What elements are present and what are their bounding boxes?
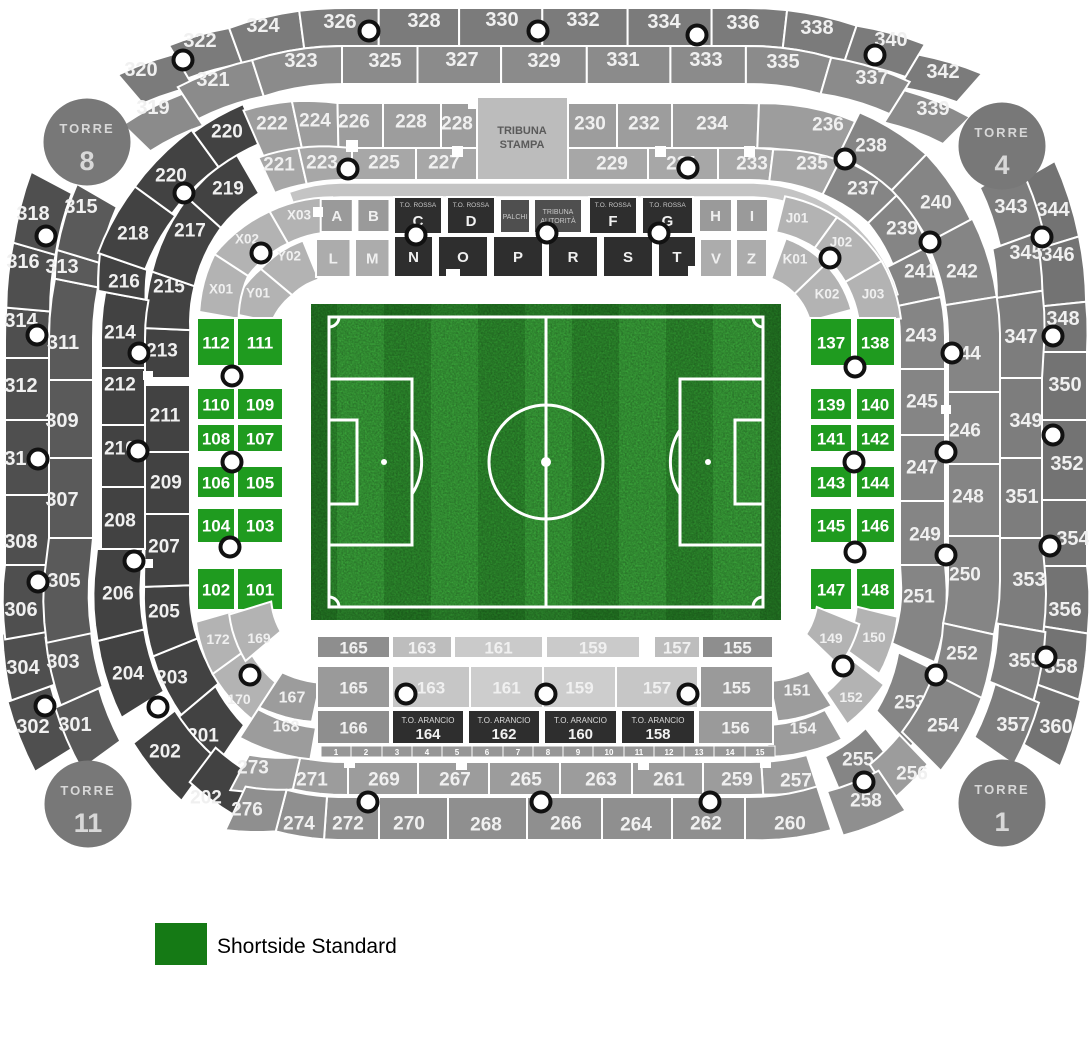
svg-text:160: 160	[568, 726, 593, 743]
svg-text:TRIBUNA: TRIBUNA	[543, 209, 574, 216]
svg-text:H: H	[710, 208, 721, 225]
svg-text:268: 268	[470, 815, 502, 836]
svg-text:164: 164	[415, 726, 441, 743]
svg-text:155: 155	[722, 679, 750, 698]
svg-text:O: O	[457, 249, 469, 266]
svg-text:T.O. ROSSA: T.O. ROSSA	[453, 202, 490, 209]
svg-text:251: 251	[903, 587, 935, 608]
svg-text:2: 2	[364, 748, 369, 757]
svg-text:305: 305	[47, 570, 80, 592]
svg-text:323: 323	[284, 50, 317, 72]
svg-text:139: 139	[817, 396, 845, 415]
svg-text:316: 316	[6, 251, 39, 273]
svg-text:322: 322	[183, 30, 216, 52]
svg-text:111: 111	[247, 334, 274, 353]
svg-text:250: 250	[949, 565, 981, 586]
svg-text:213: 213	[146, 341, 178, 362]
svg-text:150: 150	[862, 629, 886, 645]
svg-text:PALCHI: PALCHI	[503, 214, 528, 221]
svg-text:267: 267	[439, 770, 471, 791]
svg-text:263: 263	[585, 770, 617, 791]
svg-text:T.O. ROSSA: T.O. ROSSA	[649, 202, 686, 209]
svg-text:230: 230	[574, 114, 606, 135]
svg-text:211: 211	[150, 406, 181, 427]
svg-text:205: 205	[148, 602, 180, 623]
svg-text:225: 225	[368, 153, 400, 174]
svg-text:264: 264	[620, 815, 652, 836]
svg-text:162: 162	[491, 726, 516, 743]
svg-text:8: 8	[546, 748, 551, 757]
svg-text:350: 350	[1048, 374, 1081, 396]
svg-text:106: 106	[202, 474, 230, 493]
svg-text:326: 326	[323, 11, 356, 33]
svg-text:3: 3	[395, 748, 400, 757]
svg-text:246: 246	[949, 421, 981, 442]
svg-text:6: 6	[485, 748, 490, 757]
svg-text:154: 154	[790, 721, 817, 738]
svg-text:266: 266	[550, 814, 582, 835]
svg-text:N: N	[408, 249, 419, 266]
svg-text:271: 271	[296, 770, 328, 791]
svg-text:272: 272	[332, 814, 364, 835]
svg-text:327: 327	[445, 49, 478, 71]
svg-text:344: 344	[1036, 199, 1070, 221]
svg-text:9: 9	[576, 748, 581, 757]
svg-text:168: 168	[273, 719, 300, 736]
svg-text:228: 228	[395, 112, 427, 133]
svg-text:255: 255	[842, 750, 874, 771]
svg-text:256: 256	[896, 764, 928, 785]
svg-text:243: 243	[905, 326, 937, 347]
svg-text:TORRE: TORRE	[60, 783, 115, 798]
svg-text:169: 169	[247, 630, 271, 646]
svg-text:332: 332	[566, 9, 599, 31]
svg-text:302: 302	[16, 716, 49, 738]
svg-text:158: 158	[645, 726, 670, 743]
svg-text:165: 165	[339, 639, 367, 658]
svg-text:1: 1	[334, 748, 339, 757]
svg-text:140: 140	[861, 396, 889, 415]
svg-text:156: 156	[721, 719, 749, 738]
svg-text:334: 334	[647, 11, 681, 33]
svg-text:Shortside Standard: Shortside Standard	[217, 935, 397, 958]
svg-text:163: 163	[408, 639, 436, 658]
svg-text:148: 148	[861, 581, 889, 600]
svg-text:222: 222	[256, 114, 288, 135]
svg-text:343: 343	[994, 196, 1027, 218]
svg-text:349: 349	[1009, 410, 1042, 432]
svg-text:202: 202	[190, 788, 222, 809]
svg-text:152: 152	[839, 689, 863, 705]
svg-text:K01: K01	[783, 252, 808, 267]
svg-text:319: 319	[136, 97, 169, 119]
svg-text:360: 360	[1039, 716, 1072, 738]
svg-text:14: 14	[726, 748, 735, 757]
svg-text:L: L	[329, 251, 338, 268]
svg-text:249: 249	[909, 525, 941, 546]
svg-text:202: 202	[149, 742, 181, 763]
svg-text:167: 167	[279, 690, 306, 707]
svg-text:102: 102	[202, 581, 230, 600]
svg-text:104: 104	[202, 517, 231, 536]
svg-text:238: 238	[855, 136, 887, 157]
svg-text:204: 204	[112, 664, 144, 685]
svg-text:166: 166	[339, 719, 367, 738]
svg-text:161: 161	[484, 639, 512, 658]
svg-text:337: 337	[855, 67, 888, 89]
svg-text:247: 247	[906, 458, 938, 479]
svg-text:207: 207	[148, 537, 180, 558]
svg-text:262: 262	[690, 814, 722, 835]
svg-text:313: 313	[45, 256, 78, 278]
svg-text:224: 224	[299, 111, 331, 132]
svg-text:15: 15	[756, 748, 765, 757]
svg-text:11: 11	[635, 748, 644, 757]
svg-text:TORRE: TORRE	[974, 125, 1029, 140]
svg-text:236: 236	[812, 115, 844, 136]
svg-text:V: V	[711, 251, 721, 268]
svg-text:165: 165	[339, 679, 367, 698]
svg-text:172: 172	[206, 631, 230, 647]
svg-text:J03: J03	[862, 287, 885, 302]
svg-text:109: 109	[246, 396, 274, 415]
svg-text:143: 143	[817, 474, 845, 493]
svg-text:301: 301	[58, 714, 91, 736]
svg-text:206: 206	[102, 584, 134, 605]
svg-text:170: 170	[227, 691, 251, 707]
svg-text:254: 254	[927, 716, 959, 737]
svg-text:261: 261	[653, 770, 685, 791]
svg-text:R: R	[568, 249, 579, 266]
svg-text:157: 157	[643, 679, 671, 698]
svg-text:11: 11	[74, 808, 103, 838]
svg-text:1: 1	[994, 807, 1009, 837]
svg-text:8: 8	[79, 146, 94, 176]
svg-text:103: 103	[246, 517, 274, 536]
svg-text:TORRE: TORRE	[59, 121, 114, 136]
svg-text:Y01: Y01	[246, 286, 271, 301]
svg-text:D: D	[466, 213, 477, 230]
svg-text:216: 216	[108, 272, 140, 293]
svg-text:318: 318	[16, 203, 49, 225]
svg-text:226: 226	[338, 112, 370, 133]
svg-text:331: 331	[606, 49, 639, 71]
svg-text:335: 335	[766, 51, 799, 73]
svg-text:239: 239	[886, 219, 918, 240]
svg-text:159: 159	[579, 639, 607, 658]
svg-text:217: 217	[174, 221, 206, 242]
svg-text:13: 13	[695, 748, 704, 757]
svg-text:212: 212	[104, 375, 136, 396]
svg-text:307: 307	[45, 489, 78, 511]
svg-text:214: 214	[104, 323, 136, 344]
svg-text:155: 155	[723, 639, 751, 658]
svg-text:330: 330	[485, 9, 518, 31]
svg-text:F: F	[608, 213, 617, 230]
svg-text:7: 7	[516, 748, 521, 757]
svg-text:161: 161	[492, 679, 520, 698]
svg-text:X01: X01	[209, 282, 234, 297]
svg-text:138: 138	[861, 334, 889, 353]
svg-text:5: 5	[455, 748, 460, 757]
svg-text:112: 112	[202, 334, 229, 353]
svg-text:328: 328	[407, 10, 440, 32]
svg-text:260: 260	[774, 814, 806, 835]
svg-text:221: 221	[263, 155, 295, 176]
svg-text:108: 108	[202, 430, 230, 449]
svg-text:144: 144	[861, 474, 890, 493]
svg-text:137: 137	[817, 334, 845, 353]
svg-text:K02: K02	[815, 287, 840, 302]
svg-text:276: 276	[231, 800, 263, 821]
svg-text:333: 333	[689, 49, 722, 71]
svg-text:270: 270	[393, 814, 425, 835]
svg-text:229: 229	[596, 154, 628, 175]
svg-text:T.O. ARANCIO: T.O. ARANCIO	[478, 716, 531, 725]
svg-text:157: 157	[663, 639, 691, 658]
svg-text:T.O. ROSSA: T.O. ROSSA	[400, 202, 437, 209]
svg-text:X03: X03	[287, 208, 312, 223]
svg-text:S: S	[623, 249, 633, 266]
svg-text:Y02: Y02	[277, 249, 301, 264]
svg-text:101: 101	[246, 581, 274, 600]
svg-text:336: 336	[726, 12, 759, 34]
svg-text:M: M	[366, 251, 379, 268]
svg-text:303: 303	[46, 651, 79, 673]
svg-text:T: T	[672, 249, 681, 266]
svg-text:242: 242	[946, 262, 978, 283]
svg-text:357: 357	[996, 714, 1029, 736]
svg-text:308: 308	[4, 531, 37, 553]
svg-text:321: 321	[196, 69, 229, 91]
svg-text:151: 151	[784, 683, 811, 700]
svg-text:312: 312	[4, 375, 37, 397]
svg-text:329: 329	[527, 50, 560, 72]
svg-text:4: 4	[994, 150, 1009, 180]
svg-text:274: 274	[283, 814, 315, 835]
svg-text:T.O. ARANCIO: T.O. ARANCIO	[402, 716, 455, 725]
svg-text:252: 252	[946, 644, 978, 665]
svg-text:237: 237	[847, 179, 879, 200]
svg-text:145: 145	[817, 517, 845, 536]
svg-text:208: 208	[104, 511, 136, 532]
svg-text:142: 142	[861, 430, 889, 449]
svg-text:163: 163	[417, 679, 445, 698]
svg-text:352: 352	[1050, 453, 1083, 475]
svg-text:353: 353	[1012, 569, 1045, 591]
svg-text:273: 273	[237, 758, 269, 779]
svg-text:TORRE: TORRE	[974, 782, 1029, 797]
svg-text:228: 228	[441, 114, 473, 135]
svg-text:339: 339	[916, 98, 949, 120]
svg-text:325: 325	[368, 50, 401, 72]
svg-text:248: 248	[952, 487, 984, 508]
svg-text:4: 4	[425, 748, 430, 757]
svg-text:P: P	[513, 249, 523, 266]
svg-text:146: 146	[861, 517, 889, 536]
svg-text:Z: Z	[747, 251, 756, 268]
svg-text:223: 223	[306, 153, 338, 174]
svg-text:141: 141	[817, 430, 845, 449]
svg-text:12: 12	[665, 748, 674, 757]
svg-text:347: 347	[1004, 326, 1037, 348]
svg-text:234: 234	[696, 114, 728, 135]
svg-text:STAMPA: STAMPA	[500, 139, 545, 151]
svg-text:235: 235	[796, 154, 828, 175]
svg-text:B: B	[368, 208, 379, 225]
svg-text:159: 159	[565, 679, 593, 698]
svg-text:324: 324	[246, 15, 280, 37]
svg-text:T.O. ROSSA: T.O. ROSSA	[595, 202, 632, 209]
svg-text:304: 304	[6, 657, 40, 679]
svg-text:232: 232	[628, 114, 660, 135]
svg-text:309: 309	[45, 410, 78, 432]
svg-text:T.O. ARANCIO: T.O. ARANCIO	[554, 716, 607, 725]
svg-text:209: 209	[150, 473, 182, 494]
svg-text:338: 338	[800, 17, 833, 39]
svg-text:TRIBUNA: TRIBUNA	[497, 125, 547, 137]
svg-text:218: 218	[117, 224, 149, 245]
svg-text:356: 356	[1048, 599, 1081, 621]
svg-text:259: 259	[721, 770, 753, 791]
svg-text:306: 306	[4, 599, 37, 621]
svg-text:240: 240	[920, 193, 952, 214]
svg-text:219: 219	[212, 179, 244, 200]
svg-text:342: 342	[926, 61, 959, 83]
svg-text:147: 147	[817, 581, 845, 600]
svg-text:241: 241	[904, 262, 936, 283]
svg-text:110: 110	[202, 396, 229, 415]
svg-text:J01: J01	[786, 211, 809, 226]
svg-text:10: 10	[605, 748, 614, 757]
svg-text:149: 149	[819, 630, 843, 646]
svg-text:I: I	[750, 208, 754, 225]
svg-text:107: 107	[246, 430, 274, 449]
svg-text:258: 258	[850, 791, 882, 812]
svg-text:315: 315	[64, 196, 97, 218]
svg-text:220: 220	[211, 122, 243, 143]
svg-text:320: 320	[124, 59, 157, 81]
svg-text:311: 311	[47, 332, 79, 354]
svg-text:105: 105	[246, 474, 274, 493]
svg-text:245: 245	[906, 392, 938, 413]
svg-text:A: A	[331, 208, 342, 225]
svg-text:269: 269	[368, 770, 400, 791]
svg-text:351: 351	[1005, 486, 1038, 508]
svg-text:265: 265	[510, 770, 542, 791]
svg-text:T.O. ARANCIO: T.O. ARANCIO	[632, 716, 685, 725]
